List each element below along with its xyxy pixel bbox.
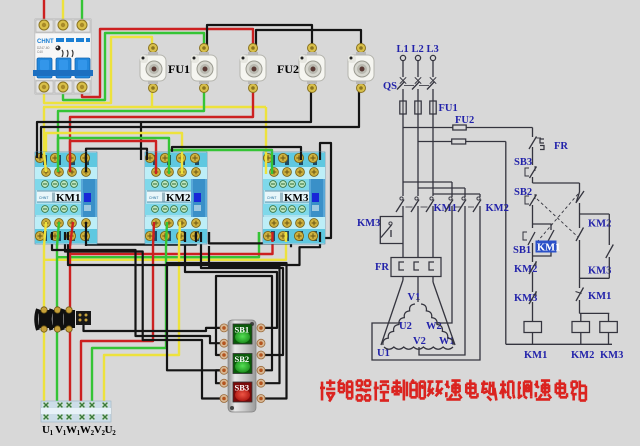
svg-text:L2: L2	[412, 44, 424, 55]
svg-text:CHNT: CHNT	[39, 196, 48, 200]
svg-text:L3: L3	[427, 44, 439, 55]
svg-text:SB2: SB2	[235, 354, 250, 364]
svg-text:KM2: KM2	[486, 203, 509, 214]
svg-text:KM3: KM3	[588, 266, 611, 277]
svg-text:CHNT: CHNT	[267, 196, 276, 200]
svg-text:KM1: KM1	[524, 350, 547, 361]
svg-text:SB3: SB3	[235, 383, 250, 393]
svg-text:KM1: KM1	[537, 243, 560, 254]
svg-text:SB3: SB3	[514, 157, 532, 168]
svg-text:FU2: FU2	[277, 62, 299, 76]
svg-text:FU1: FU1	[168, 62, 190, 76]
svg-text:QS: QS	[383, 81, 397, 92]
svg-text:SB1: SB1	[513, 245, 531, 256]
svg-text:CHNT: CHNT	[149, 196, 158, 200]
svg-text:FR: FR	[554, 141, 568, 152]
svg-text:FU2: FU2	[455, 115, 474, 126]
svg-text:KM3: KM3	[357, 218, 380, 229]
svg-text:KM3: KM3	[514, 293, 537, 304]
svg-text:SB1: SB1	[235, 325, 250, 335]
svg-text:KM2: KM2	[588, 219, 611, 230]
svg-text:CHNT: CHNT	[37, 39, 54, 45]
svg-text:FU1: FU1	[439, 103, 458, 114]
svg-text:V2: V2	[413, 336, 426, 347]
svg-text:FR: FR	[375, 262, 389, 273]
svg-text:L1: L1	[397, 44, 409, 55]
svg-text:U2: U2	[399, 321, 412, 332]
svg-text:C40: C40	[37, 50, 43, 54]
svg-text:SB2: SB2	[514, 187, 532, 198]
svg-text:KM3: KM3	[600, 350, 623, 361]
svg-text:KM1: KM1	[434, 203, 457, 214]
svg-text:KM1: KM1	[588, 291, 611, 302]
svg-text:U1 V1W1W2V2U2: U1 V1W1W2V2U2	[42, 424, 116, 437]
svg-text:KM2: KM2	[571, 350, 594, 361]
